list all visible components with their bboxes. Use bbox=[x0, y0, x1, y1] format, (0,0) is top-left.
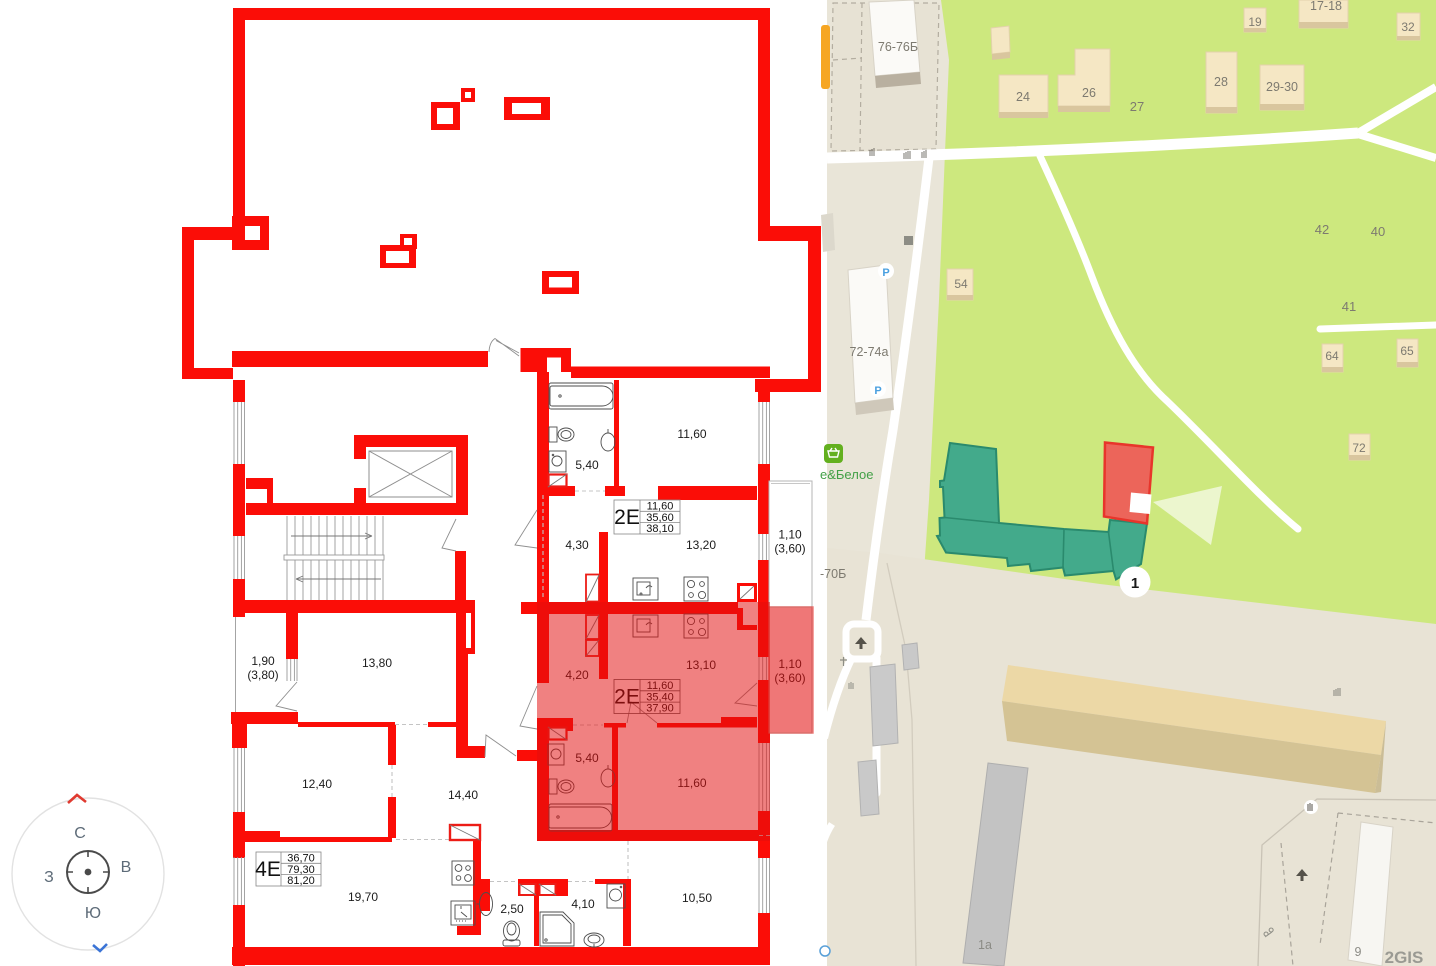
svg-text:35,60: 35,60 bbox=[646, 512, 674, 524]
svg-text:С: С bbox=[74, 825, 86, 842]
svg-text:13,20: 13,20 bbox=[686, 538, 716, 552]
svg-text:З: З bbox=[44, 869, 54, 886]
svg-text:(3,80): (3,80) bbox=[247, 668, 278, 682]
svg-text:2GIS: 2GIS bbox=[1385, 948, 1424, 966]
svg-text:17-18: 17-18 bbox=[1310, 0, 1342, 13]
svg-text:64: 64 bbox=[1325, 349, 1339, 363]
svg-text:11,60: 11,60 bbox=[647, 501, 674, 513]
svg-text:1: 1 bbox=[1131, 575, 1139, 592]
svg-text:76-76Б: 76-76Б bbox=[878, 40, 918, 54]
svg-text:10,50: 10,50 bbox=[682, 891, 712, 905]
svg-text:4,10: 4,10 bbox=[571, 897, 595, 911]
svg-text:е&Белое: е&Белое bbox=[820, 467, 873, 482]
svg-text:1,90: 1,90 bbox=[251, 654, 275, 668]
svg-text:29-30: 29-30 bbox=[1266, 80, 1298, 94]
svg-text:12,40: 12,40 bbox=[302, 777, 332, 791]
svg-text:1а: 1а bbox=[978, 938, 992, 952]
svg-text:27: 27 bbox=[1130, 99, 1144, 114]
svg-text:41: 41 bbox=[1342, 299, 1356, 314]
svg-text:72-74а: 72-74а bbox=[850, 345, 889, 359]
svg-text:9: 9 bbox=[1355, 945, 1362, 959]
svg-text:2,50: 2,50 bbox=[500, 902, 524, 916]
svg-text:(3,60): (3,60) bbox=[774, 542, 805, 556]
svg-text:2Е: 2Е bbox=[614, 506, 640, 529]
svg-text:26: 26 bbox=[1082, 86, 1096, 100]
svg-text:11,60: 11,60 bbox=[677, 427, 706, 441]
svg-text:13,80: 13,80 bbox=[362, 656, 392, 670]
svg-text:4,30: 4,30 bbox=[565, 538, 589, 552]
svg-text:42: 42 bbox=[1315, 222, 1329, 237]
svg-text:5,40: 5,40 bbox=[575, 458, 599, 472]
svg-text:72: 72 bbox=[1352, 441, 1366, 455]
svg-text:38,10: 38,10 bbox=[646, 523, 674, 535]
svg-text:24: 24 bbox=[1016, 90, 1030, 104]
svg-text:В: В bbox=[121, 859, 132, 876]
svg-text:19,70: 19,70 bbox=[348, 890, 378, 904]
svg-text:1,10: 1,10 bbox=[778, 528, 802, 542]
svg-text:19: 19 bbox=[1248, 15, 1262, 29]
svg-text:-70Б: -70Б bbox=[820, 567, 846, 581]
svg-text:4Е: 4Е bbox=[255, 858, 281, 881]
svg-text:P: P bbox=[882, 267, 889, 279]
svg-text:65: 65 bbox=[1400, 344, 1414, 358]
svg-text:28: 28 bbox=[1214, 75, 1228, 89]
svg-text:14,40: 14,40 bbox=[448, 788, 478, 802]
svg-text:P: P bbox=[874, 385, 881, 397]
svg-text:32: 32 bbox=[1401, 20, 1415, 34]
svg-text:36,70: 36,70 bbox=[287, 853, 315, 865]
svg-text:40: 40 bbox=[1371, 224, 1385, 239]
svg-text:79,30: 79,30 bbox=[287, 864, 315, 876]
svg-text:54: 54 bbox=[954, 277, 968, 291]
svg-text:Ю: Ю bbox=[85, 905, 101, 922]
svg-text:81,20: 81,20 bbox=[287, 875, 315, 887]
